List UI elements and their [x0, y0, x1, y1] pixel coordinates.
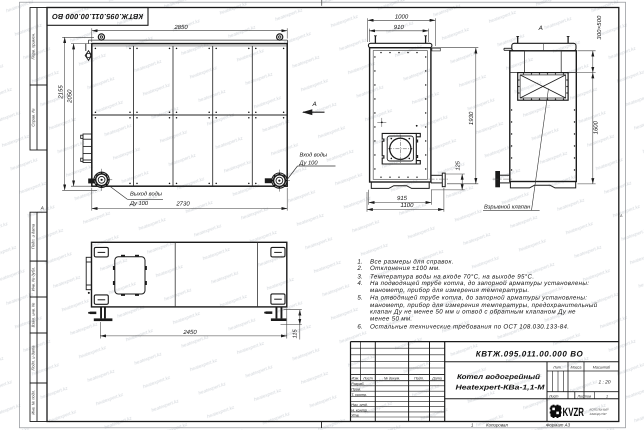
svg-text:манометр, прибор для измерения: манометр, прибор для измерения температу… — [370, 287, 530, 294]
svg-text:На подводящей трубе котла, до: На подводящей трубе котла, до запорной а… — [370, 280, 589, 287]
svg-text:125: 125 — [455, 160, 461, 170]
svg-text:300×500: 300×500 — [596, 15, 603, 40]
svg-text:Ду 100: Ду 100 — [129, 201, 149, 207]
svg-text:2730: 2730 — [175, 201, 190, 208]
svg-text:Ду 100: Ду 100 — [299, 161, 319, 167]
svg-text:2450: 2450 — [182, 329, 197, 336]
svg-text:Дата: Дата — [431, 376, 442, 380]
svg-text:Формат А3: Формат А3 — [546, 422, 571, 427]
svg-text:Подп. и дата: Подп. и дата — [31, 223, 36, 249]
svg-text:Подп.: Подп. — [414, 376, 424, 380]
svg-text:Перв. примен.: Перв. примен. — [31, 33, 36, 60]
svg-text:КВТЖ.095.011.00.000 ВО: КВТЖ.095.011.00.000 ВО — [476, 350, 584, 359]
svg-text:1: 1 — [606, 395, 608, 399]
svg-text:А: А — [619, 214, 623, 218]
svg-text:КОТЕЛЬНЫЙ: КОТЕЛЬНЫЙ — [590, 408, 610, 412]
svg-text:Утв.: Утв. — [351, 414, 359, 418]
svg-text:1 : 20: 1 : 20 — [598, 380, 610, 386]
svg-text:Масштаб: Масштаб — [593, 365, 611, 369]
svg-text:Справ. №: Справ. № — [31, 108, 36, 127]
svg-text:Лит.: Лит. — [552, 365, 562, 369]
svg-text:Т. контр.: Т. контр. — [351, 393, 367, 397]
svg-text:На отводящей трубе котла, до з: На отводящей трубе котла, до запорной ар… — [370, 295, 587, 302]
svg-text:Листов: Листов — [577, 395, 592, 399]
svg-text:2050: 2050 — [66, 89, 73, 104]
svg-text:А: А — [40, 206, 44, 211]
svg-text:Взам. инв. №: Взам. инв. № — [31, 302, 36, 327]
svg-text:Нач. отд.: Нач. отд. — [351, 403, 368, 407]
svg-text:5.: 5. — [357, 295, 362, 302]
svg-text:Лист: Лист — [362, 376, 373, 380]
svg-text:КВТЖ.095.011.00.000 ВО: КВТЖ.095.011.00.000 ВО — [52, 12, 143, 21]
svg-text:Лист: Лист — [548, 395, 559, 399]
svg-text:Инв. № подл.: Инв. № подл. — [31, 390, 36, 415]
svg-text:1930: 1930 — [468, 111, 475, 125]
svg-text:Подп. и дата: Подп. и дата — [31, 345, 36, 371]
svg-text:Взрывной клапан: Взрывной клапан — [484, 204, 531, 211]
svg-text:2155: 2155 — [58, 85, 65, 100]
svg-text:2.: 2. — [356, 265, 362, 272]
svg-text:Инв. № дубл.: Инв. № дубл. — [31, 267, 36, 292]
svg-text:915: 915 — [397, 195, 408, 202]
svg-text:А: А — [538, 25, 543, 32]
svg-text:4.: 4. — [357, 280, 362, 287]
svg-text:Остальные технические требован: Остальные технические требования по ОСТ … — [370, 324, 569, 331]
svg-text:Масса: Масса — [571, 365, 582, 369]
svg-text:А: А — [312, 101, 317, 108]
svg-text:115: 115 — [293, 329, 299, 339]
svg-text:910: 910 — [394, 24, 405, 31]
svg-text:1000: 1000 — [395, 13, 409, 20]
svg-text:6.: 6. — [357, 324, 362, 331]
svg-text:Котел водогрейный: Котел водогрейный — [457, 373, 541, 381]
svg-text:№ докум.: № докум. — [384, 376, 400, 380]
svg-text:Разраб.: Разраб. — [351, 382, 364, 386]
svg-text:менее 50 мм.: менее 50 мм. — [370, 316, 412, 323]
svg-text:2850: 2850 — [173, 24, 188, 31]
svg-text:Пров.: Пров. — [351, 388, 361, 392]
svg-text:1100: 1100 — [401, 202, 415, 209]
svg-text:Вход воды: Вход воды — [300, 152, 328, 159]
svg-text:Изм.: Изм. — [351, 376, 359, 380]
svg-text:Копировал: Копировал — [486, 422, 508, 427]
svg-text:Н. контр.: Н. контр. — [351, 408, 368, 412]
svg-text:Выход воды: Выход воды — [130, 191, 163, 198]
svg-text:Heatexpert-КВа-1,1-М: Heatexpert-КВа-1,1-М — [456, 385, 545, 392]
svg-text:ЗАВОД РЭР: ЗАВОД РЭР — [590, 412, 607, 416]
svg-text:KVZR: KVZR — [563, 405, 585, 419]
svg-text:1600: 1600 — [592, 120, 599, 134]
svg-text:Отклонения ±100 мм.: Отклонения ±100 мм. — [370, 265, 440, 272]
